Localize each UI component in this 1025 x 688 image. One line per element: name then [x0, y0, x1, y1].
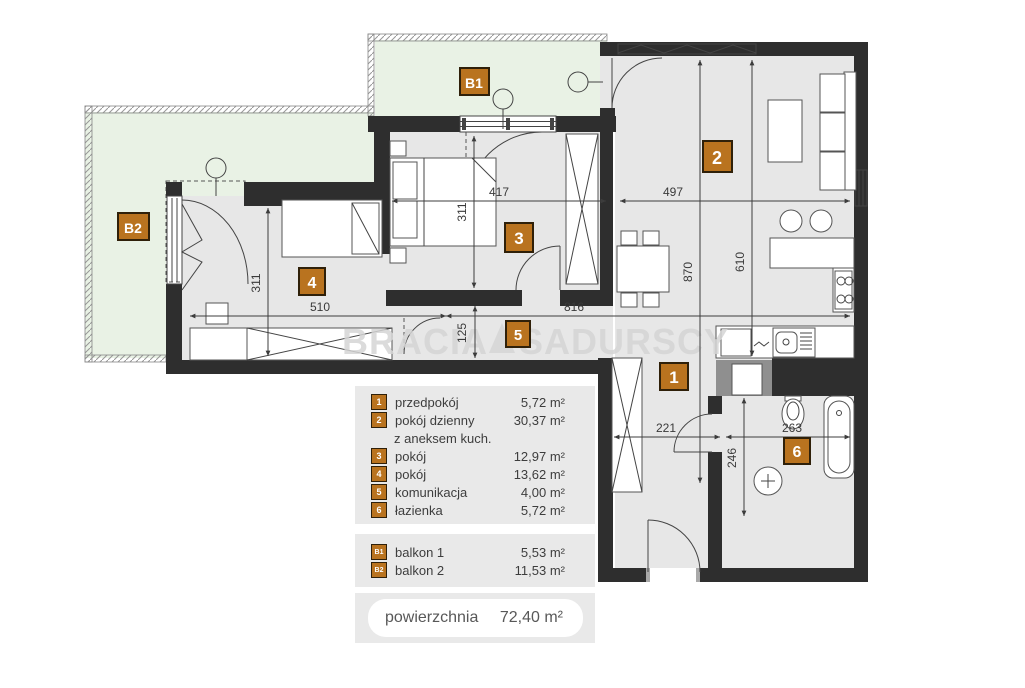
room-marker-2: 2 — [703, 141, 732, 172]
wardrobe-hall — [612, 358, 642, 492]
watermark: BRACIA SADURSCY — [342, 321, 729, 362]
bed-double — [390, 141, 496, 263]
sofa — [820, 72, 856, 190]
room-area: 4,00 m² — [493, 485, 565, 500]
room-name: pokój dzienny — [395, 413, 493, 428]
dim-corridor-width: 816 — [564, 300, 584, 314]
legend-row-3: 3 pokój 12,97 m² — [371, 447, 565, 465]
legend-row-2: 2 pokój dzienny 30,37 m² — [371, 411, 565, 429]
room-marker-4: 4 — [299, 268, 325, 295]
svg-text:B2: B2 — [124, 220, 142, 236]
room-marker-6: 6 — [784, 438, 810, 464]
balcony-area: 11,53 m² — [493, 563, 565, 578]
fridge — [732, 364, 762, 395]
legend-chip-b1: B1 — [371, 544, 387, 560]
room-name: pokój — [395, 449, 493, 464]
dim-room3-height: 311 — [455, 202, 469, 221]
svg-text:4: 4 — [308, 275, 317, 292]
side-table — [206, 303, 228, 324]
balcony-b1-area — [375, 40, 607, 116]
legend-chip-2: 2 — [371, 412, 387, 428]
legend-chip-5: 5 — [371, 484, 387, 500]
coffee-table — [768, 100, 802, 162]
legend-chip-3: 3 — [371, 448, 387, 464]
dim-kitchen-height: 610 — [733, 252, 747, 272]
dim-hall-width: 221 — [656, 421, 676, 435]
svg-text:3: 3 — [514, 229, 523, 248]
total-area-pill: powierzchnia 72,40 m² — [368, 599, 583, 637]
legend-chip-b2: B2 — [371, 562, 387, 578]
room-area: 12,97 m² — [493, 449, 565, 464]
room-area: 13,62 m² — [493, 467, 565, 482]
balcony-name: balkon 2 — [395, 563, 493, 578]
room-area: 30,37 m² — [493, 413, 565, 428]
dim-room3-width: 417 — [489, 185, 509, 199]
dim-living-height: 870 — [681, 262, 695, 282]
kitchen-sink — [773, 328, 815, 357]
legend-row-4: 4 pokój 13,62 m² — [371, 465, 565, 483]
room-name-cont: z aneksem kuch. — [394, 431, 492, 446]
dim-room4-width: 510 — [310, 300, 330, 314]
room-name: pokój — [395, 467, 493, 482]
room-name: komunikacja — [395, 485, 493, 500]
floor-plan-page: BRACIA SADURSCY 417 497 311 870 610 510 … — [0, 0, 1025, 688]
dim-room4-height: 311 — [249, 273, 263, 292]
balcony-area: 5,53 m² — [493, 545, 565, 560]
washing-machine — [754, 467, 782, 495]
room-area: 5,72 m² — [493, 395, 565, 410]
svg-text:B1: B1 — [465, 75, 483, 91]
balcony-marker-b1: B1 — [460, 68, 489, 95]
legend: 1 przedpokój 5,72 m² 2 pokój dzienny 30,… — [355, 386, 595, 643]
room-marker-5: 5 — [506, 321, 530, 347]
legend-row-b1: B1 balkon 1 5,53 m² — [371, 543, 565, 561]
legend-balconies-panel: B1 balkon 1 5,53 m² B2 balkon 2 11,53 m² — [355, 534, 595, 587]
legend-row-2-cont: z aneksem kuch. — [371, 429, 565, 447]
stove — [835, 271, 853, 309]
balcony-name: balkon 1 — [395, 545, 493, 560]
wardrobe-room3 — [566, 134, 598, 284]
legend-chip-4: 4 — [371, 466, 387, 482]
room4-balcony-door-frame — [167, 196, 182, 284]
legend-chip-1: 1 — [371, 394, 387, 410]
room-marker-3: 3 — [505, 223, 533, 252]
dim-bath-width: 263 — [782, 421, 802, 435]
svg-text:5: 5 — [514, 327, 522, 344]
room-marker-1: 1 — [660, 363, 688, 390]
legend-row-5: 5 komunikacja 4,00 m² — [371, 483, 565, 501]
legend-row-6: 6 łazienka 5,72 m² — [371, 501, 565, 519]
total-area-label: powierzchnia — [385, 609, 478, 627]
legend-rooms-panel: 1 przedpokój 5,72 m² 2 pokój dzienny 30,… — [355, 386, 595, 524]
bed-single — [282, 200, 382, 257]
dim-hall-height: 246 — [725, 448, 739, 468]
svg-text:2: 2 — [712, 148, 722, 168]
room-name: łazienka — [395, 503, 493, 518]
dim-corridor-height: 125 — [455, 323, 469, 343]
svg-text:6: 6 — [793, 444, 802, 461]
legend-chip-6: 6 — [371, 502, 387, 518]
room-area: 5,72 m² — [493, 503, 565, 518]
dim-living-width: 497 — [663, 185, 683, 199]
legend-total-panel: powierzchnia 72,40 m² — [355, 593, 595, 643]
watermark-right: SADURSCY — [519, 321, 729, 362]
legend-row-b2: B2 balkon 2 11,53 m² — [371, 561, 565, 579]
room-name: przedpokój — [395, 395, 493, 410]
room3-balcony-window — [460, 116, 556, 132]
legend-row-1: 1 przedpokój 5,72 m² — [371, 393, 565, 411]
total-area-value: 72,40 m² — [500, 609, 563, 627]
svg-text:1: 1 — [669, 368, 678, 387]
balcony-marker-b2: B2 — [118, 213, 149, 240]
